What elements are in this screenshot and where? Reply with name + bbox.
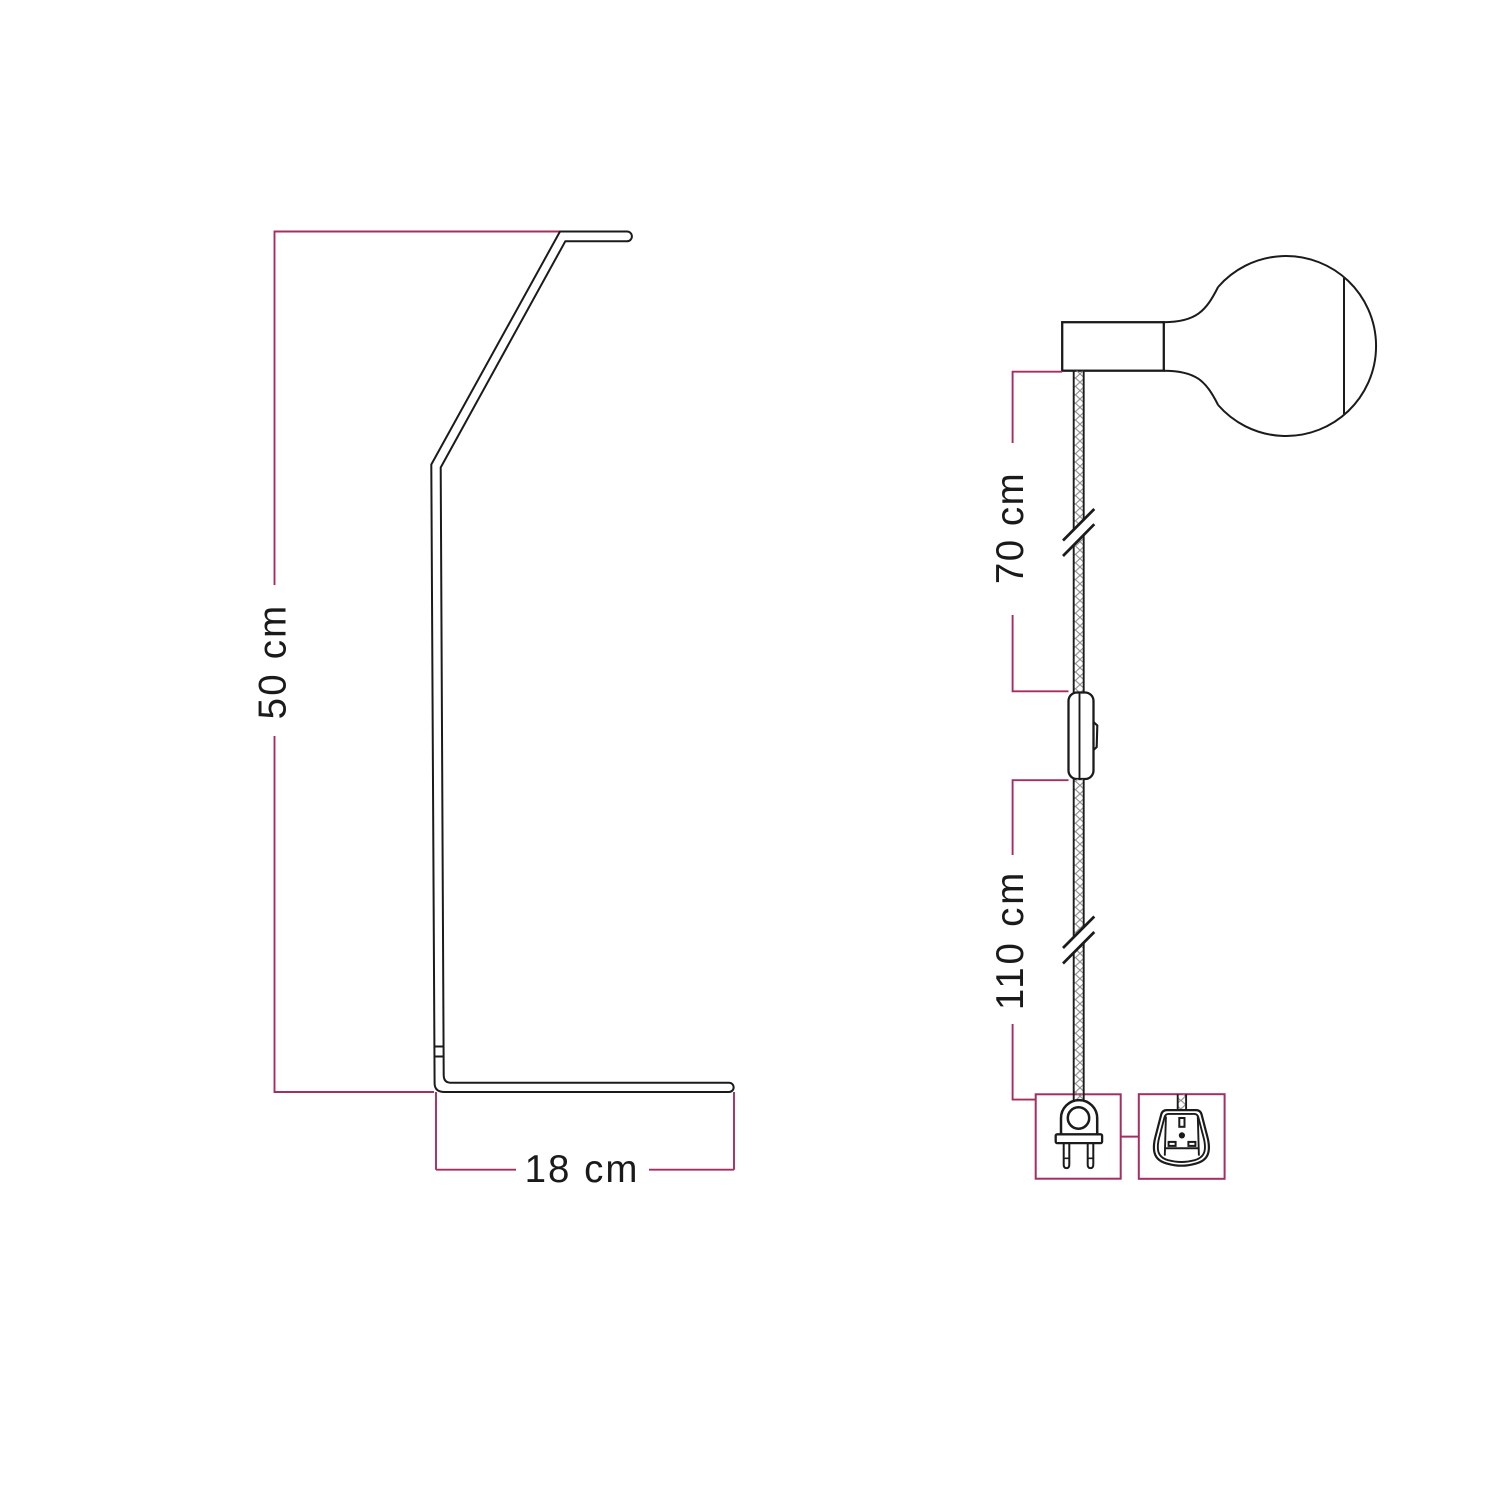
- svg-text:70 cm: 70 cm: [989, 472, 1032, 584]
- svg-text:110 cm: 110 cm: [989, 870, 1032, 1010]
- svg-text:18 cm: 18 cm: [525, 1148, 640, 1191]
- svg-text:50 cm: 50 cm: [252, 604, 295, 720]
